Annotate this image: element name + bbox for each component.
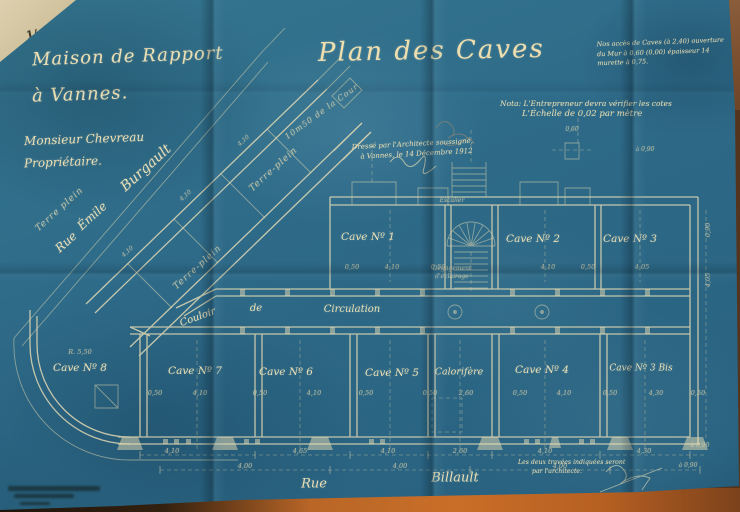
photo-vignette [0, 0, 740, 512]
blueprint-sheet: Cave Nº 1Cave Nº 2Cave Nº 3Cave Nº 8Cave… [0, 0, 740, 512]
blueprint-photo: 1/ [0, 0, 740, 512]
